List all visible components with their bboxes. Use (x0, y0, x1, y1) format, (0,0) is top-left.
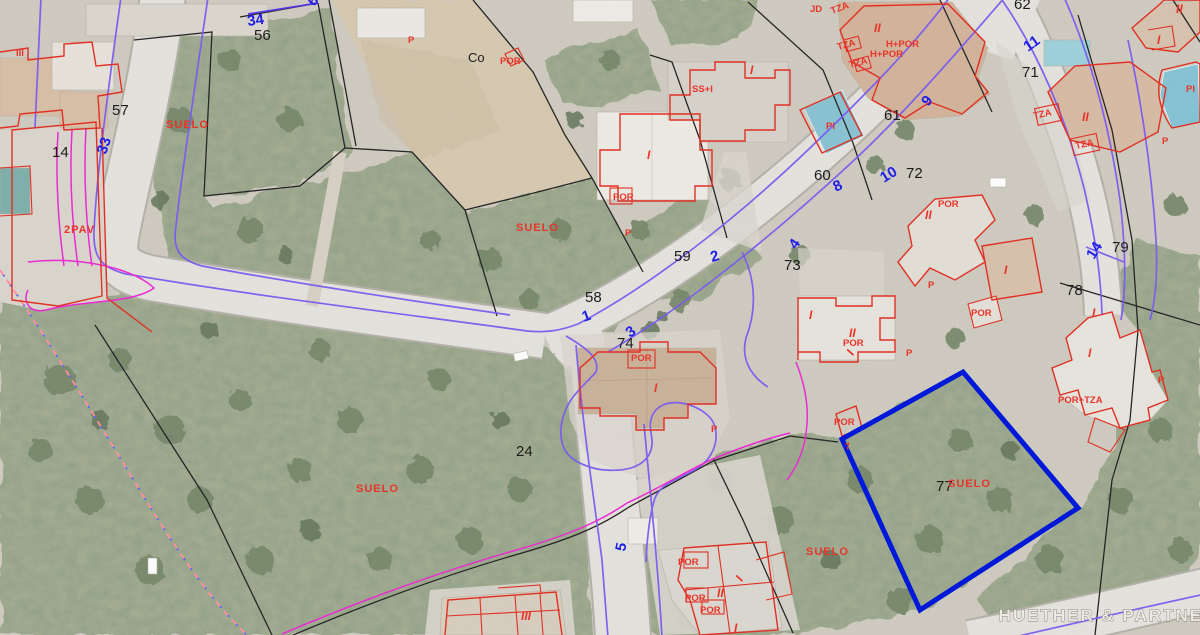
map-label-58-10: 58 (585, 289, 602, 306)
map-label-por-43: POR (500, 56, 521, 67)
map-label-co-16: Co (468, 50, 485, 65)
map-label-59-8: 59 (674, 248, 691, 265)
map-label-p-39: P (906, 348, 913, 359)
map-label-por-47: POR (971, 308, 992, 319)
map-label-78-12: 78 (1066, 282, 1083, 299)
map-label-pi-63: PI (826, 121, 835, 132)
map-label-72-7: 72 (906, 165, 923, 182)
map-label-por-51: POR (685, 593, 706, 604)
cadastral-map-stage: 62565714716160725973587478792477Co343361… (0, 0, 1200, 635)
map-label-p-36: P (408, 35, 415, 46)
map-label-pi-64: PI (1186, 84, 1195, 95)
map-label-2pav-35: 2PAV (64, 224, 95, 236)
map-label-ii-78: II (1082, 110, 1089, 124)
map-label-34-17: 34 (246, 11, 266, 30)
cadastral-map[interactable]: 62565714716160725973587478792477Co343361… (0, 0, 1200, 635)
map-label-73-9: 73 (784, 257, 801, 274)
map-label-iii-83: III (521, 609, 532, 623)
map-label-14-3: 14 (52, 144, 69, 161)
map-label-por-46: POR (938, 199, 959, 210)
map-label-ii-82: II (717, 586, 724, 600)
map-label-p-40: P (928, 280, 935, 291)
map-label-79-13: 79 (1112, 239, 1129, 256)
map-label-57-2: 57 (112, 102, 129, 119)
map-label-p-37: P (625, 228, 632, 239)
map-label-por-44: POR (613, 192, 634, 203)
map-label-jd-56: JD (810, 4, 822, 15)
map-label-62-0: 62 (1014, 0, 1031, 13)
map-label-por-tza-55: POR+TZA (1058, 395, 1103, 406)
map-label-24-14: 24 (516, 443, 533, 460)
map-label-suelo-30: SUELO (166, 119, 209, 131)
map-label-por-50: POR (678, 557, 699, 568)
watermark: HUETHER & PARTNER (999, 606, 1200, 625)
map-label-60-6: 60 (814, 167, 831, 184)
map-label-ss-i-62: SS+I (692, 84, 713, 95)
map-label-suelo-34: SUELO (806, 546, 849, 558)
map-label-por-45: POR (631, 353, 652, 364)
map-label-61-5: 61 (884, 107, 901, 124)
map-label-por-52: POR (700, 605, 721, 616)
map-label-p-41: P (1162, 136, 1169, 147)
map-label-suelo-33: SUELO (948, 478, 991, 490)
map-label-56-1: 56 (254, 27, 271, 44)
map-label-ii-79: II (1176, 2, 1183, 16)
map-label-71-4: 71 (1022, 64, 1039, 81)
map-label-iii-84: III (16, 48, 24, 59)
map-label-ii-80: II (925, 208, 932, 222)
map-label-ii-81: II (849, 326, 856, 340)
map-label-suelo-32: SUELO (356, 483, 399, 495)
map-label-ii-77: II (874, 21, 881, 35)
map-label-suelo-31: SUELO (516, 222, 559, 234)
map-label-h-por-54: H+POR (870, 49, 903, 60)
map-label-p-38: P (711, 424, 718, 435)
map-label-por-49: POR (834, 417, 855, 428)
map-label-p-42: P (1158, 375, 1165, 386)
